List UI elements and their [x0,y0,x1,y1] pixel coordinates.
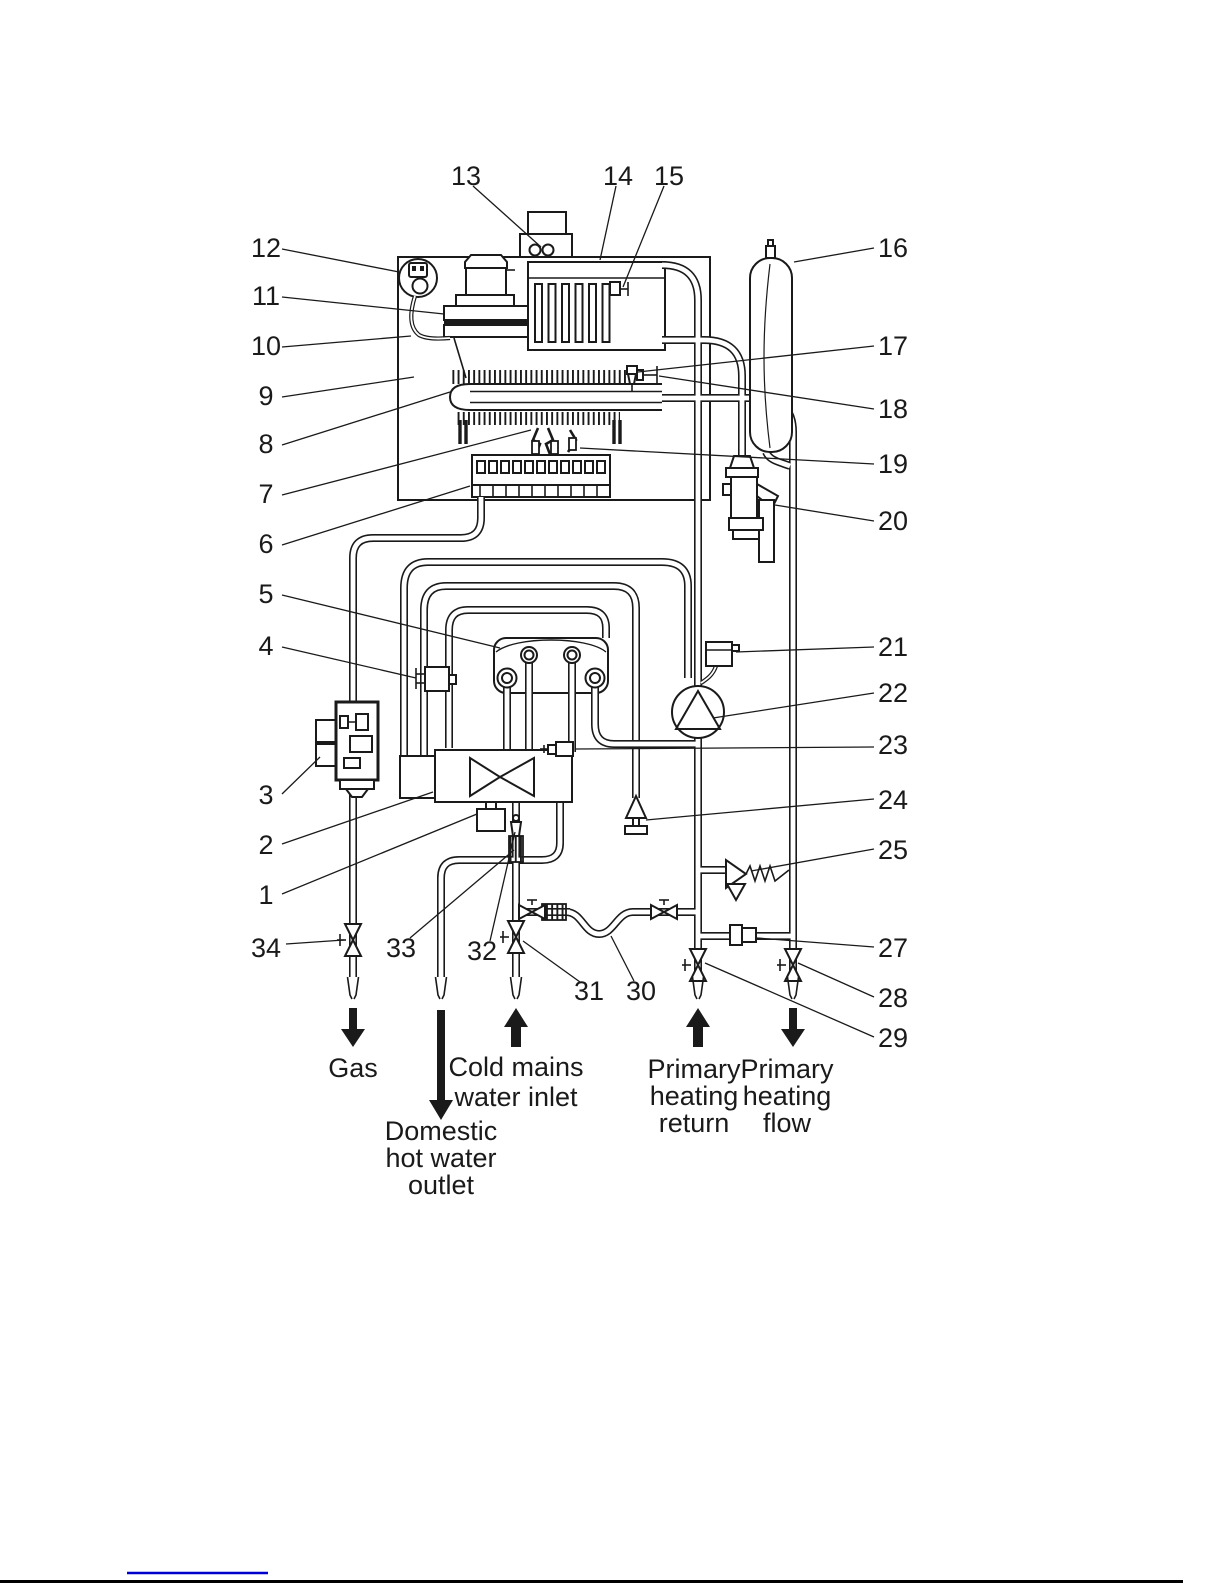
callout-33: 33 [386,933,416,963]
callout-14: 14 [603,161,633,191]
callout-3: 3 [258,780,273,810]
cold-label-line2: water inlet [453,1082,578,1112]
callout-12: 12 [251,233,281,263]
flow-arrow [781,1008,805,1047]
callout-11: 11 [252,281,280,311]
connection-labels: Gas Cold mains water inlet Domestic hot … [328,1052,834,1200]
return-label-line3: return [659,1108,730,1138]
drain-point-24 [625,796,647,834]
callout-10: 10 [251,331,281,361]
dhw-label-line2: hot water [385,1143,496,1173]
gas-valve [316,702,378,797]
callout-30: 30 [626,976,656,1006]
flow-sensor [477,809,505,831]
boiler-schematic-figure: 13 14 15 12 11 10 9 8 7 6 5 4 3 2 1 34 3… [0,0,1225,1585]
callout-18: 18 [878,394,908,424]
main-heat-exchanger [528,262,665,350]
callout-numbers-right: 16 17 18 19 20 21 22 23 24 25 27 28 29 [878,233,908,1053]
filling-loop [519,900,677,920]
return-label-line1: Primary [648,1054,741,1084]
callout-23: 23 [878,730,908,760]
expansion-vessel [750,240,792,452]
callout-1: 1 [258,880,273,910]
callout-8: 8 [258,429,273,459]
diverter-valve-assembly [400,750,572,809]
return-arrow [686,1008,710,1047]
callout-13: 13 [451,161,481,191]
callout-25: 25 [878,835,908,865]
callout-28: 28 [878,983,908,1013]
callout-15: 15 [654,161,684,191]
dhw-label-line3: outlet [408,1170,475,1200]
callout-7: 7 [258,479,273,509]
cold-arrow [504,1008,528,1047]
return-label-line2: heating [650,1081,739,1111]
callout-29: 29 [878,1023,908,1053]
gas-supply-pipe [353,497,481,702]
callout-6: 6 [258,529,273,559]
bypass-assembly-27 [730,925,756,945]
callout-9: 9 [258,381,273,411]
condensate-trap [723,456,778,562]
callout-34: 34 [251,933,281,963]
flow-label-line2: heating [743,1081,832,1111]
pump [672,686,724,738]
callout-4: 4 [258,631,273,661]
callout-17: 17 [878,331,908,361]
air-pressure-switch [399,259,437,297]
callout-16: 16 [878,233,908,263]
gas-supply-pipe [353,497,481,702]
flow-label-line3: flow [763,1108,812,1138]
cold-label-line1: Cold mains [448,1052,583,1082]
gas-arrow [341,1008,365,1047]
document-page: 13 14 15 12 11 10 9 8 7 6 5 4 3 2 1 34 3… [0,0,1225,1585]
gas-label: Gas [328,1053,378,1083]
dhw-label-line1: Domestic [385,1116,498,1146]
callout-5: 5 [258,579,273,609]
callout-32: 32 [467,936,497,966]
callout-22: 22 [878,678,908,708]
flow-label-line1: Primary [741,1054,834,1084]
burner-manifold [472,455,610,497]
callout-19: 19 [878,449,908,479]
auto-air-vent [706,642,739,666]
flow-restrictor-32 [511,815,521,836]
callout-24: 24 [878,785,908,815]
callout-27: 27 [878,933,908,963]
callout-20: 20 [878,506,908,536]
callout-31: 31 [574,976,604,1006]
callout-2: 2 [258,830,273,860]
boiler-casing [398,212,710,500]
callout-21: 21 [878,632,908,662]
